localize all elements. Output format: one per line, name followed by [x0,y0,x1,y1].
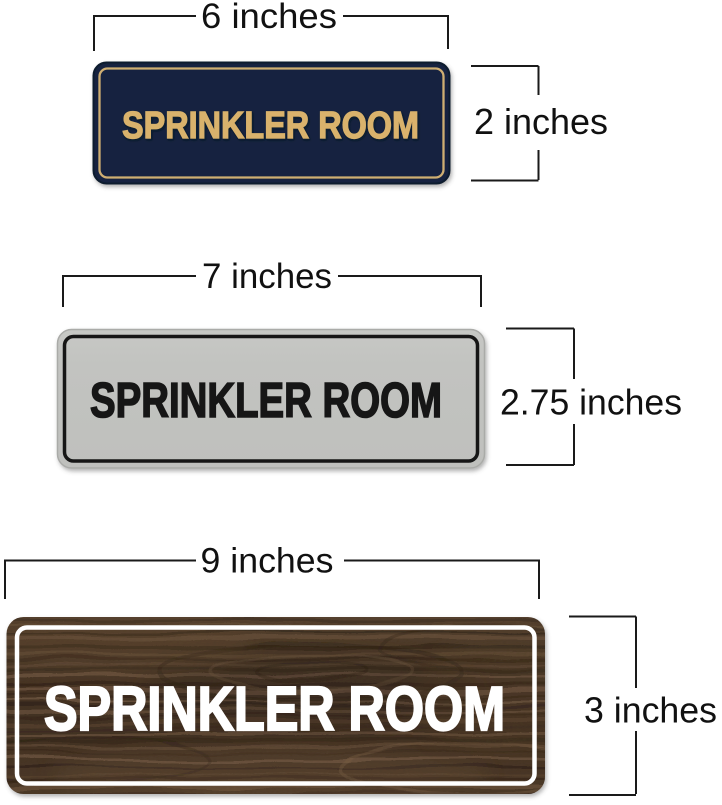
svg-text:SPRINKLER ROOM: SPRINKLER ROOM [90,374,442,428]
svg-text:2 inches: 2 inches [474,101,608,142]
svg-text:SPRINKLER ROOM: SPRINKLER ROOM [44,675,505,744]
svg-text:2.75 inches: 2.75 inches [500,382,682,423]
svg-text:9 inches: 9 inches [201,542,334,581]
svg-text:7 inches: 7 inches [202,257,332,296]
svg-text:3 inches: 3 inches [584,690,717,731]
svg-text:6 inches: 6 inches [201,0,337,36]
svg-text:SPRINKLER ROOM: SPRINKLER ROOM [122,105,419,147]
